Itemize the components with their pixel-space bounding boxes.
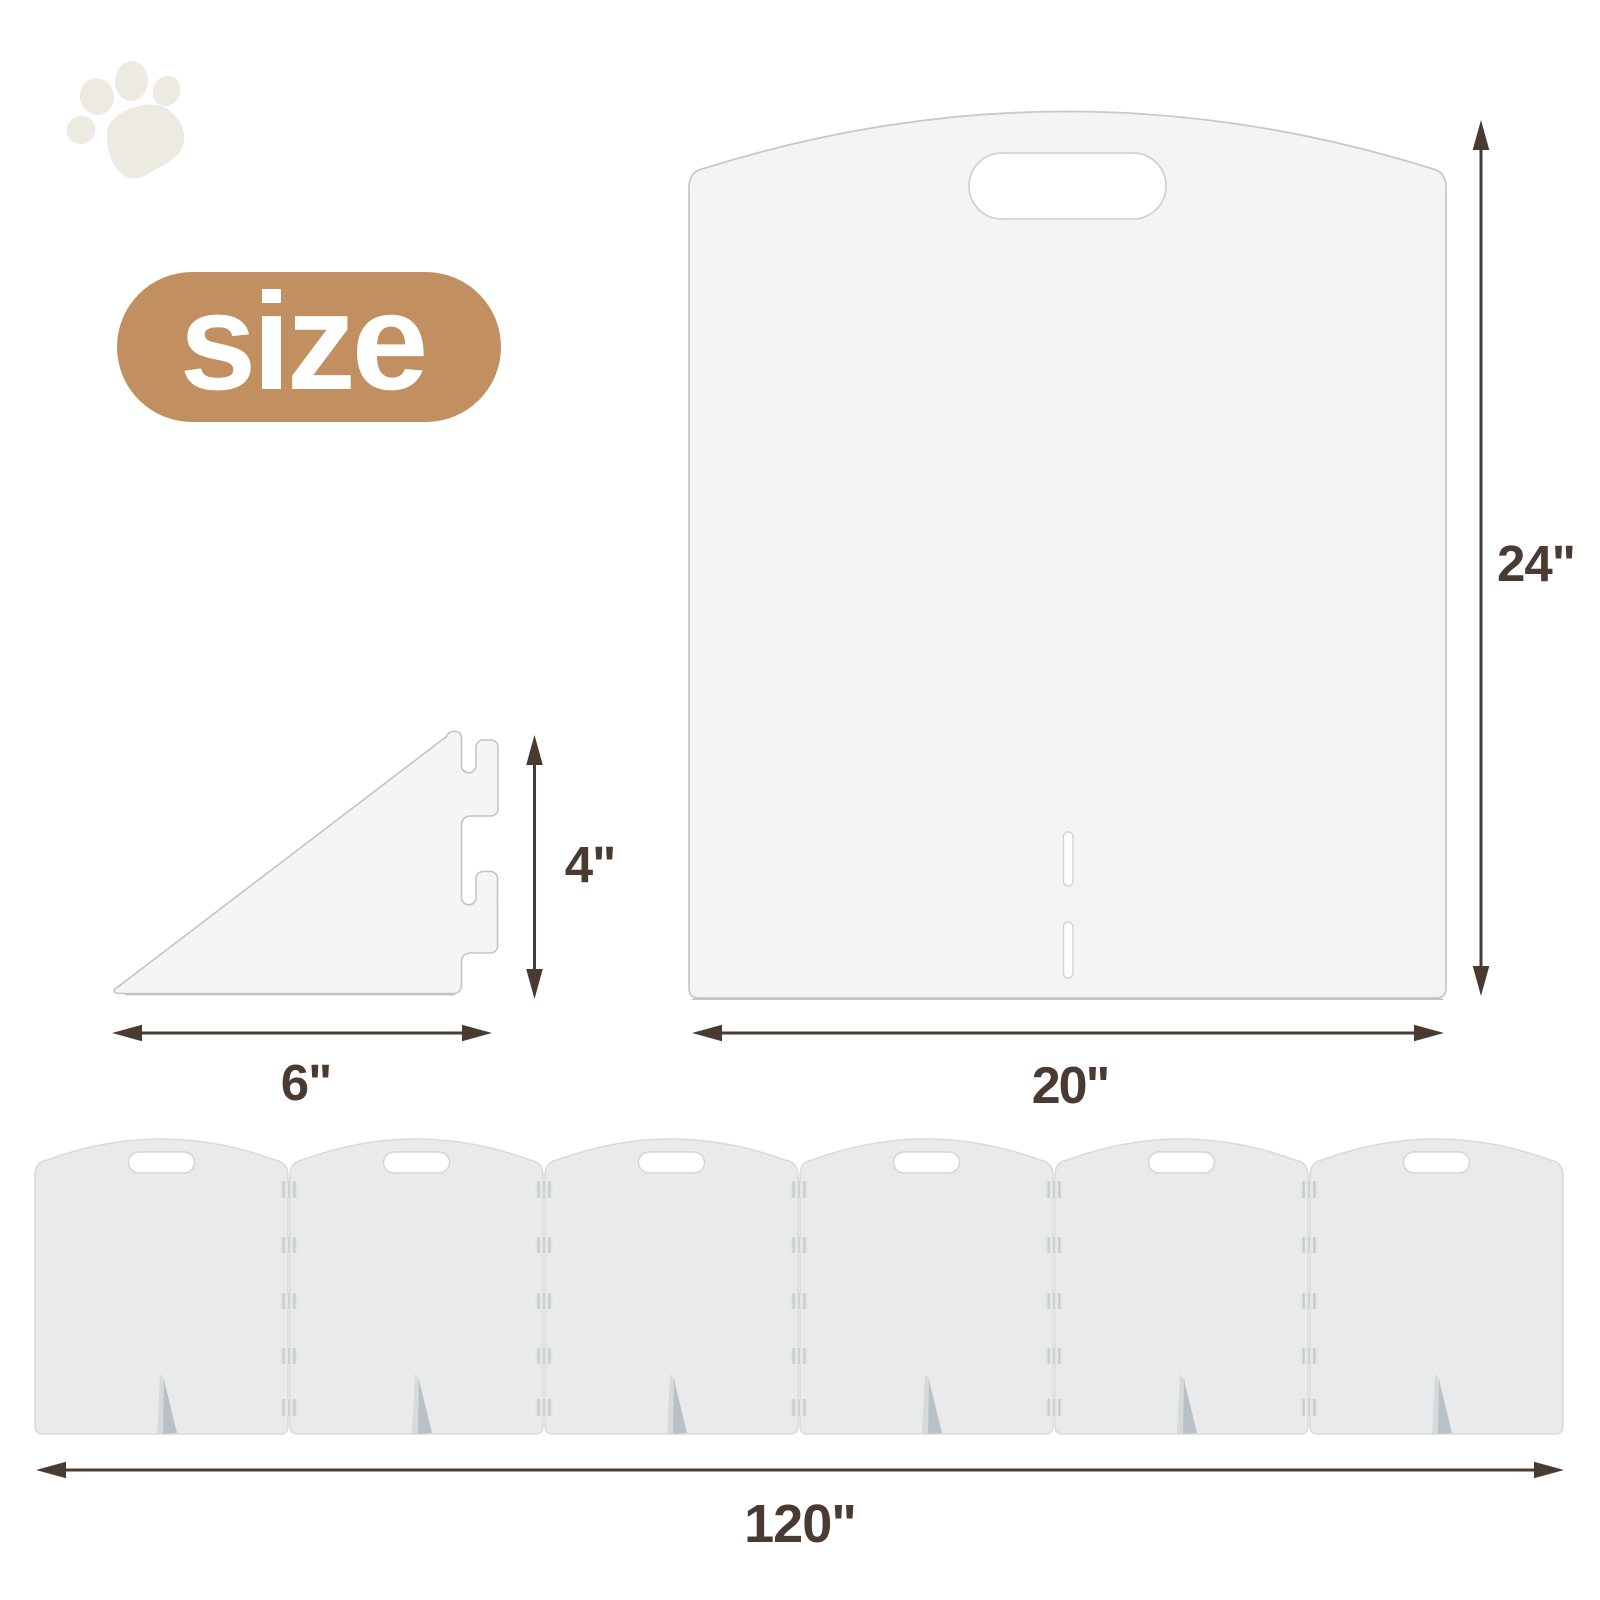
svg-text:size: size [180,265,425,419]
svg-text:6": 6" [281,1054,332,1111]
svg-text:120": 120" [744,1494,856,1554]
svg-text:4": 4" [565,836,616,893]
svg-text:20": 20" [1032,1057,1109,1115]
svg-text:24": 24" [1497,535,1575,592]
